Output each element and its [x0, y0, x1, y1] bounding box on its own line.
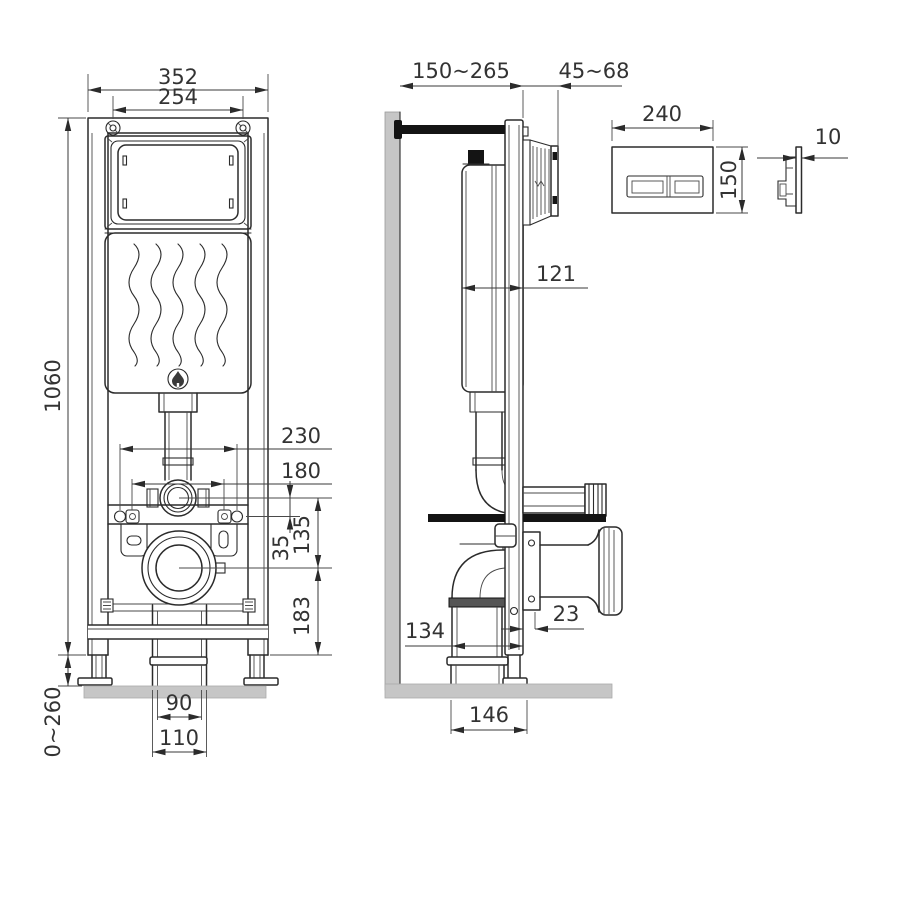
- flush-pipe: [159, 393, 197, 480]
- dim-base-depth: 146: [469, 703, 509, 727]
- dim-plate-thickness: 10: [815, 125, 842, 149]
- frame-legs: [78, 655, 278, 686]
- wall: [385, 112, 400, 690]
- wall-anchor-rod: [394, 120, 505, 139]
- pipe-coupling: [473, 458, 505, 465]
- dim-outlet-pipe-inner: 90: [166, 691, 193, 715]
- pan-fixing-stud: [523, 484, 606, 516]
- technical-drawing-canvas: 352 254 1060 0~260 230 180 35 13: [0, 0, 900, 900]
- floor: [385, 684, 612, 698]
- waste-elbow: [447, 544, 508, 686]
- plate-shaft-bellows: [523, 140, 558, 225]
- flush-plate-side: 10: [757, 125, 848, 213]
- pipe-coupling: [163, 458, 193, 465]
- dim-cistern-depth: 121: [536, 262, 576, 286]
- dim-flush-to-outlet: 135: [290, 515, 314, 555]
- dim-plate-width: 240: [642, 102, 682, 126]
- drawing-svg: 352 254 1060 0~260 230 180 35 13: [0, 0, 900, 900]
- rail-clip: [243, 599, 255, 612]
- front-view: 352 254 1060 0~260 230 180 35 13: [41, 65, 332, 758]
- dim-frame-height: 1060: [41, 359, 65, 412]
- dim-outlet-to-frame: 134: [405, 619, 445, 643]
- dim-depth-range: 150~265: [412, 59, 510, 83]
- dim-plate-offset: 23: [553, 602, 580, 626]
- inlet-valve: [468, 150, 484, 164]
- access-panel: [105, 136, 251, 233]
- side-view: 150~265 45~68 121 23 134 146: [385, 59, 630, 734]
- dim-plate-height: 150: [717, 160, 741, 200]
- dim-shaft-range: 45~68: [558, 59, 629, 83]
- pipe-coupling-dark: [449, 598, 506, 607]
- dim-fixing-inner: 180: [281, 459, 321, 483]
- flush-plate-side-dimensions: 10: [757, 125, 848, 158]
- plate-clip-mechanism: [778, 157, 796, 206]
- brand-logo-icon: [168, 369, 188, 389]
- rail-clip: [101, 599, 113, 612]
- dim-outlet-pipe-outer: 110: [159, 726, 199, 750]
- insulation-waves: [129, 244, 227, 366]
- flush-plate-front: 240 150: [612, 102, 748, 213]
- dim-screw-spacing: 254: [158, 85, 198, 109]
- dim-fixing-outer: 230: [281, 424, 321, 448]
- dim-outlet-to-bottom: 183: [290, 596, 314, 636]
- pipe-collar: [150, 657, 207, 665]
- dim-leg-adjust-range: 0~260: [41, 686, 65, 757]
- cistern: [105, 233, 251, 393]
